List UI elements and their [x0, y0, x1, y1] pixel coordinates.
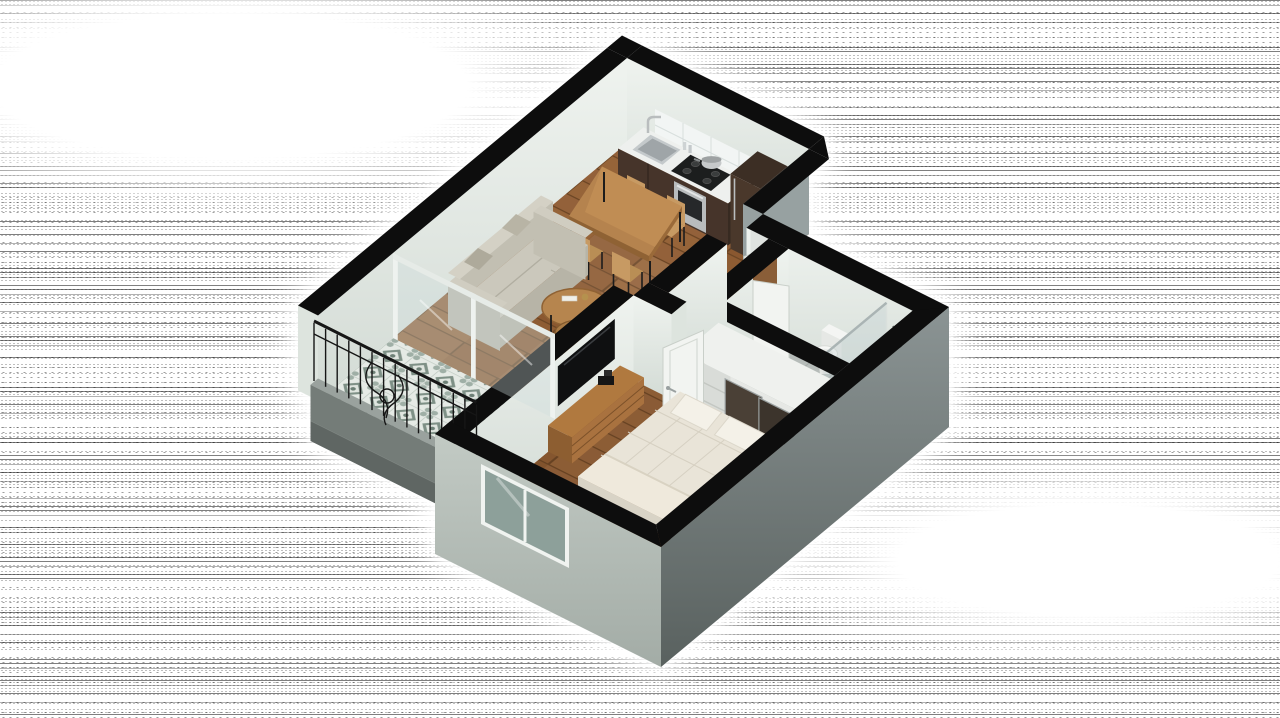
- door-frame-post: [471, 292, 476, 379]
- glassware: [683, 142, 686, 150]
- decor-books: [562, 296, 577, 301]
- glassware: [689, 145, 692, 153]
- building: [298, 36, 949, 668]
- console-decor: [604, 370, 612, 376]
- decor-sculpture: [582, 294, 589, 301]
- pot-lid: [702, 156, 722, 163]
- door-frame-post: [393, 253, 398, 340]
- console-decor: [598, 376, 614, 385]
- floorplan-scene: Photorealistic 3D isometric cutaway floo…: [0, 0, 1280, 718]
- door-frame-post: [550, 332, 555, 419]
- isometric-floorplan-svg: Photorealistic 3D isometric cutaway floo…: [0, 0, 1280, 718]
